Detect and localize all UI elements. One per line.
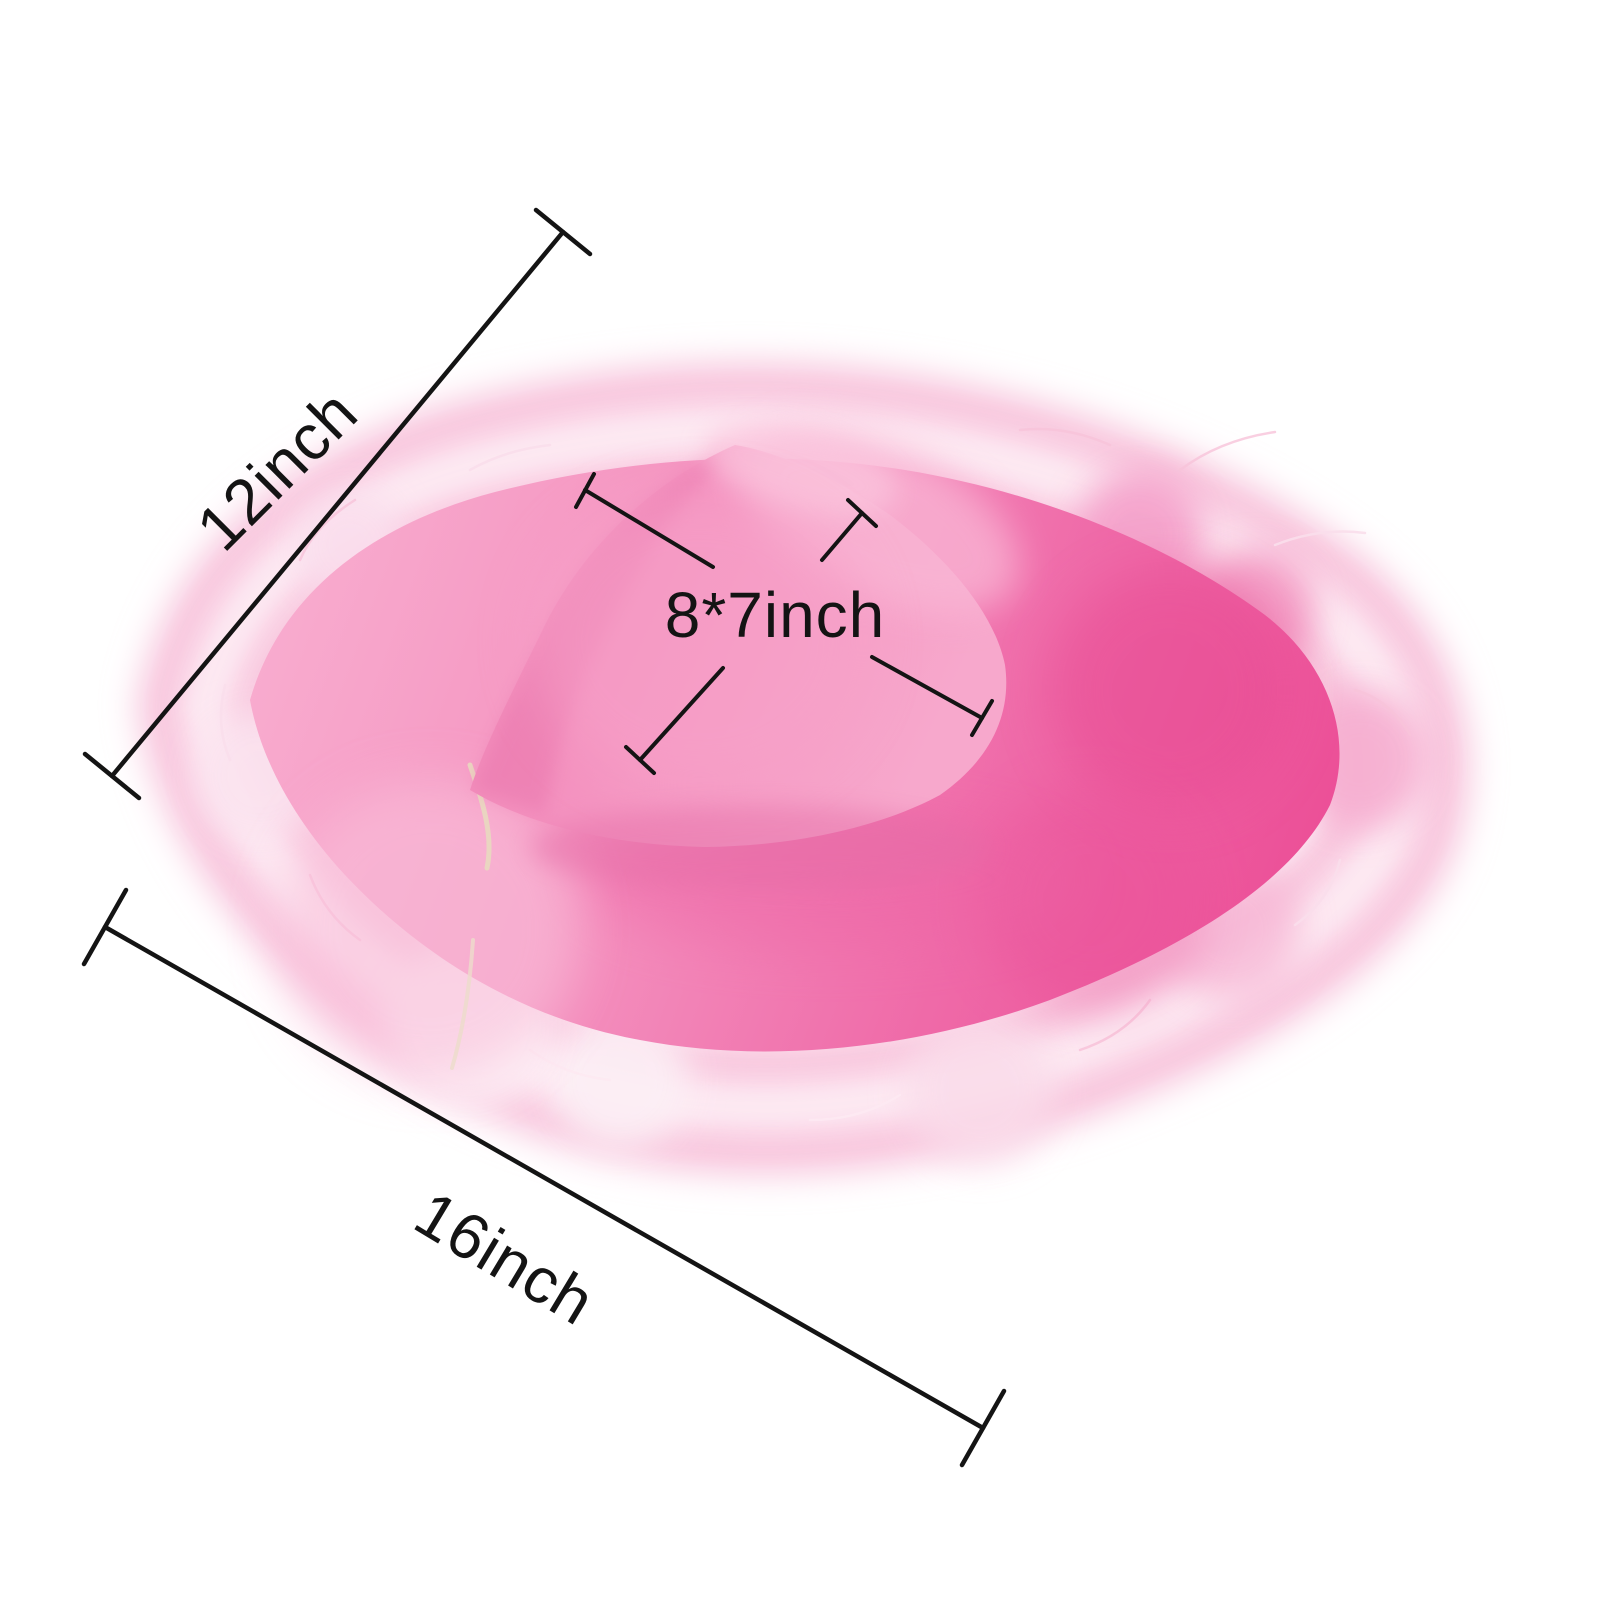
hat-dimension-diagram: 12inch 16inch 8*7inch [0, 0, 1600, 1600]
label-crown-size: 8*7inch [665, 579, 886, 651]
tick-brim-width-right [962, 1391, 1004, 1465]
product-dimension-image: 12inch 16inch 8*7inch [0, 0, 1600, 1600]
label-brim-width: 16inch [403, 1177, 607, 1339]
pink-cowboy-hat [195, 389, 1430, 1165]
tick-brim-depth-bottom [85, 754, 139, 798]
tick-brim-width-left [84, 890, 126, 964]
tick-brim-depth-top [536, 210, 590, 254]
